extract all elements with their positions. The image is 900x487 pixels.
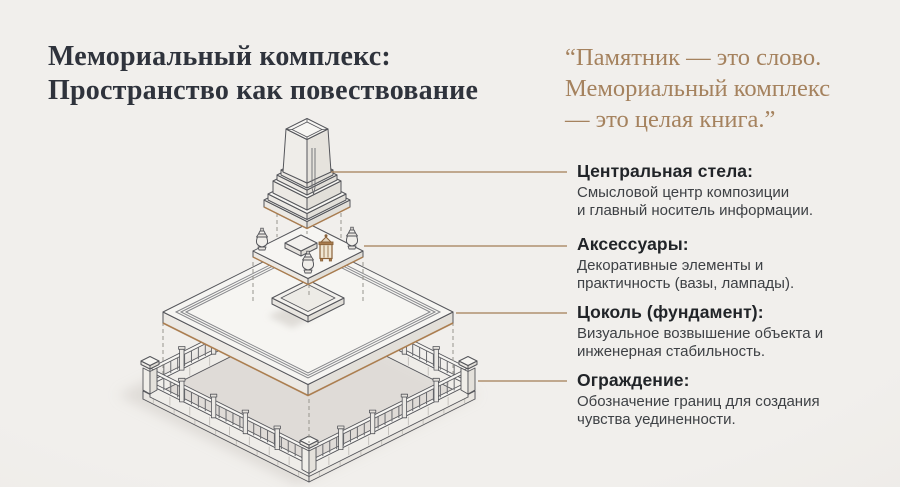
page-title: Мемориальный комплекс: Пространство как … xyxy=(48,40,478,107)
callout-central-stela-body: Смысловой центр композиции и главный нос… xyxy=(577,184,882,219)
callout-accessories-heading: Аксессуары: xyxy=(577,234,882,255)
callout-fence-body: Обозначение границ для создания чувства … xyxy=(577,393,882,428)
callout-fence: Ограждение: Обозначение границ для созда… xyxy=(577,370,882,428)
callout-fence-heading: Ограждение: xyxy=(577,370,882,391)
stela-illustration xyxy=(264,119,350,229)
callout-foundation-body: Визуальное возвышение объекта и инженерн… xyxy=(577,325,882,360)
callout-foundation-heading: Цоколь (фундамент): xyxy=(577,302,882,323)
callout-central-stela: Центральная стела: Смысловой центр компо… xyxy=(577,161,882,219)
callout-accessories-body: Декоративные элементы и практичность (ва… xyxy=(577,257,882,292)
callout-accessories: Аксессуары: Декоративные элементы и прак… xyxy=(577,234,882,292)
quote-text: “Памятник — это слово. Мемориальный комп… xyxy=(565,42,885,135)
memorial-infographic: Мемориальный комплекс: Пространство как … xyxy=(0,0,900,487)
callout-central-stela-heading: Центральная стела: xyxy=(577,161,882,182)
callout-foundation: Цоколь (фундамент): Визуальное возвышени… xyxy=(577,302,882,360)
